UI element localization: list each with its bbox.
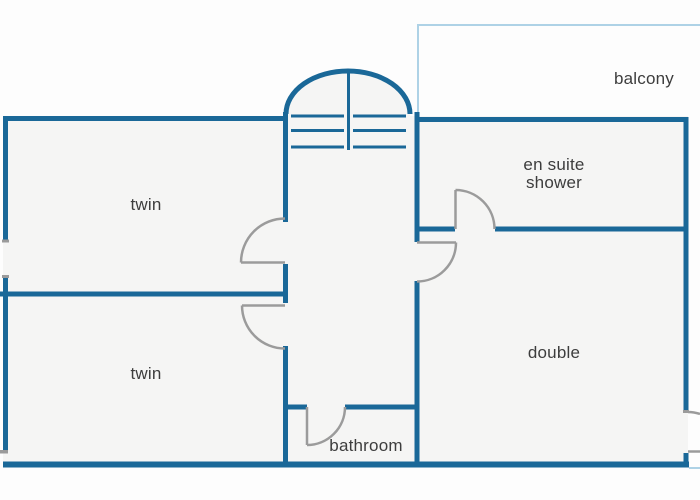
room-label-double: double [528, 344, 580, 362]
room-label-balcony: balcony [614, 70, 674, 88]
floor-plan-drawing [0, 0, 700, 500]
floor-plan: twin twin en suite shower double bathroo… [0, 0, 700, 500]
room-label-twin-top: twin [130, 196, 161, 214]
door-exterior-right [688, 412, 700, 452]
room-label-ensuite-shower: en suite shower [508, 156, 600, 192]
room-label-bathroom: bathroom [329, 437, 402, 455]
room-label-twin-bottom: twin [130, 365, 161, 383]
